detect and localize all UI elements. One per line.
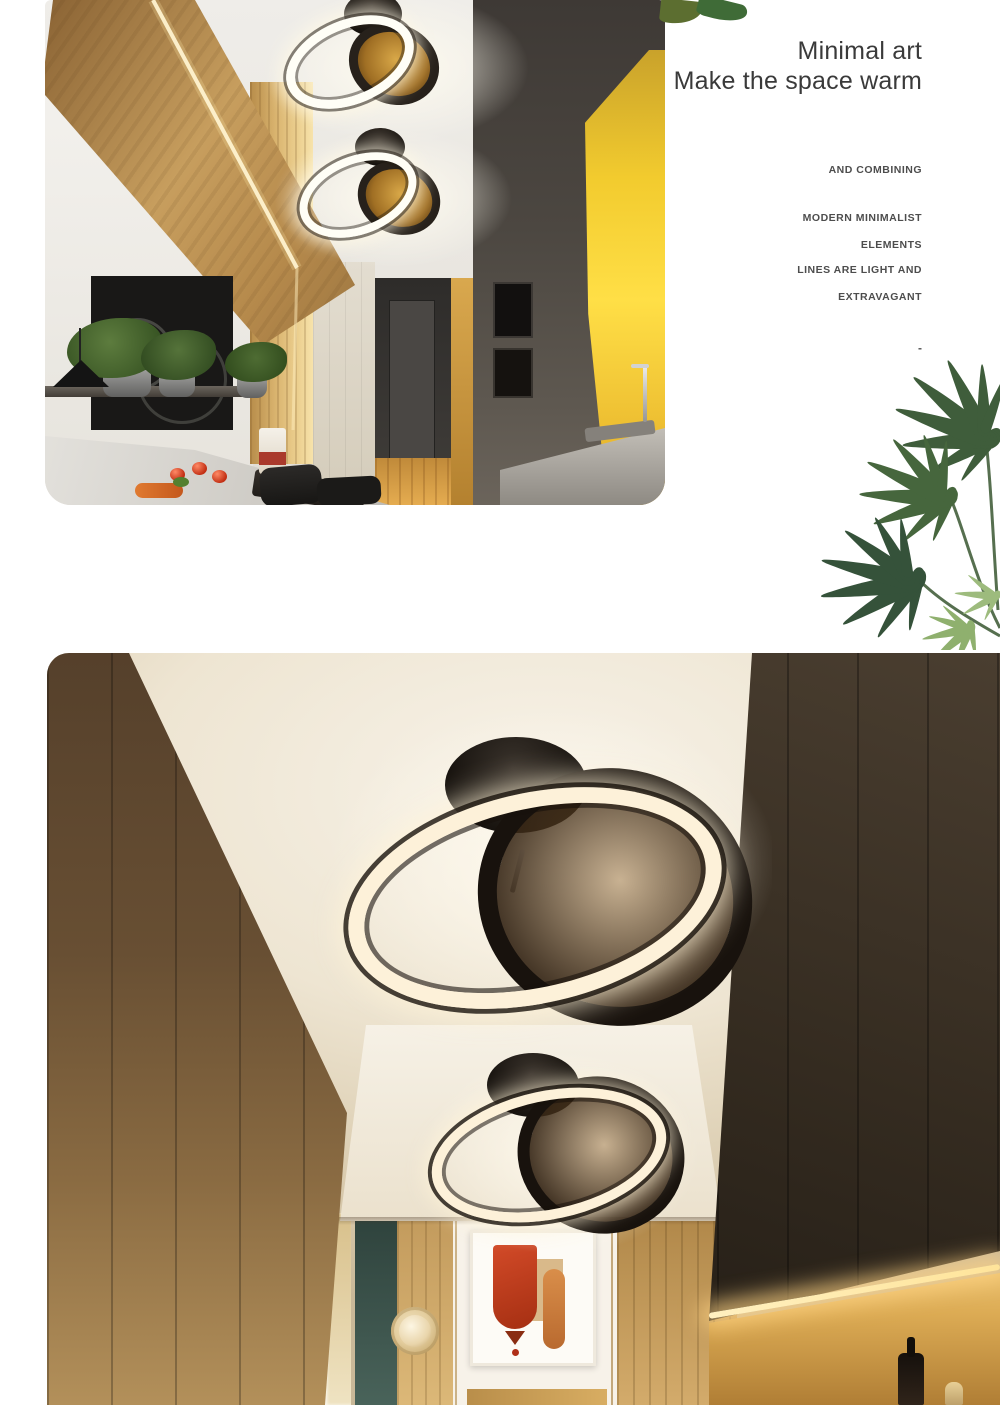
tagline-line: EXTRAVAGANT — [838, 291, 922, 303]
pendant-lamp-stem — [79, 328, 81, 362]
headline-line2: Make the space warm — [674, 66, 922, 96]
bar-chair — [316, 475, 381, 505]
wood-floor — [467, 1389, 607, 1405]
artwork-red-shape — [493, 1245, 537, 1329]
wine-bottle — [898, 1353, 924, 1405]
teal-accent-wall — [355, 1213, 397, 1405]
tagline-line: MODERN MINIMALIST — [803, 212, 922, 224]
kitchen-faucet-spout — [631, 364, 649, 368]
small-gold-bottle — [945, 1382, 963, 1405]
kitchen-oven-appliance — [493, 348, 533, 398]
tomato — [212, 470, 227, 483]
kitchen-faucet — [643, 366, 647, 422]
tagline-dash: - — [918, 341, 922, 355]
tagline-line: AND COMBINING — [829, 164, 922, 176]
tagline-line: LINES ARE LIGHT AND — [797, 264, 922, 276]
wine-bottle-neck — [907, 1337, 915, 1357]
artwork-fringe — [505, 1331, 525, 1345]
kitchen-oven-appliance — [493, 282, 533, 338]
kitchen-lit-wood-trim — [451, 278, 475, 505]
kitchen-lifestyle-photo — [45, 0, 665, 505]
carrot-greens — [173, 477, 189, 487]
bar-chair — [258, 463, 323, 505]
snack-package-label — [259, 452, 286, 465]
artwork-dot — [512, 1349, 519, 1356]
kitchen-door — [389, 300, 435, 464]
artwork-orange-pill — [543, 1269, 565, 1349]
headline-line1: Minimal art — [674, 36, 922, 66]
tomato — [192, 462, 207, 475]
monstera-leaves — [815, 358, 1000, 650]
kitchen-hall-floor — [375, 458, 451, 505]
tagline-line: ELEMENTS — [861, 239, 922, 251]
top-leaf-lobe — [695, 0, 748, 26]
top-leaf-lobe — [659, 0, 703, 26]
rose-sculpture — [391, 1307, 439, 1355]
hallway-lifestyle-photo — [47, 653, 1000, 1405]
headline: Minimal art Make the space warm — [674, 36, 922, 96]
product-detail-page: { "headline": { "line1": "Minimal art", … — [0, 0, 1000, 1405]
